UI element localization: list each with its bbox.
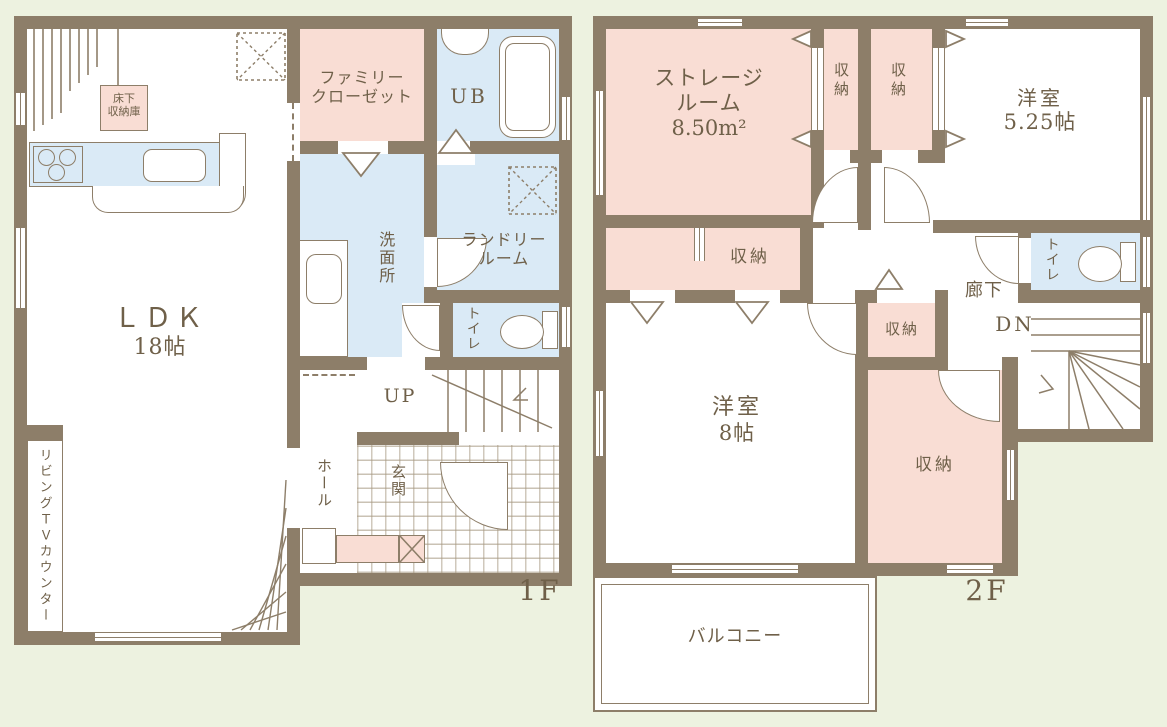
wall <box>855 370 868 563</box>
shoe-cabinet <box>336 535 399 563</box>
closet-walkin-label: 収納 <box>903 455 967 475</box>
opening-dashed-line <box>292 103 294 161</box>
wall <box>388 141 424 154</box>
toilet-tank <box>542 311 558 349</box>
closet-door-track <box>811 48 824 130</box>
stove-burner-icon <box>38 149 55 166</box>
wall <box>1140 16 1153 442</box>
wall <box>850 150 882 163</box>
window <box>15 93 26 125</box>
window <box>672 564 798 574</box>
window <box>1142 313 1151 363</box>
staircase-2f <box>1031 303 1140 429</box>
wall <box>780 290 807 303</box>
laundry-label: ランドリールーム <box>449 230 559 268</box>
wall <box>811 29 824 48</box>
window <box>561 97 571 140</box>
window <box>947 564 993 574</box>
folding-door-icon <box>438 128 474 154</box>
window <box>95 632 221 642</box>
vanity-basin <box>306 254 342 304</box>
opening-ldk-hall <box>287 448 300 528</box>
washroom-label: 洗面所 <box>376 231 395 285</box>
toilet-bowl <box>1078 246 1122 282</box>
window <box>1142 97 1151 220</box>
corner-hatch-lines <box>228 478 286 630</box>
wall-tv-counter-stub <box>27 425 63 440</box>
wall <box>593 215 811 228</box>
floor-plan-canvas: 床下収納庫 リビングＴＶカウンター <box>0 0 1167 727</box>
wall <box>593 290 630 303</box>
wall <box>424 29 437 154</box>
kitchen-sink <box>143 149 206 182</box>
wall <box>855 357 937 370</box>
folding-door-icon <box>792 30 812 48</box>
wall <box>470 141 559 154</box>
wall <box>1018 290 1140 303</box>
folding-door-icon <box>945 30 965 48</box>
window <box>698 18 742 27</box>
bathtub-inner <box>505 43 550 131</box>
ldk-label: ＬＤＫ 18帖 <box>90 303 230 362</box>
wall <box>918 150 945 163</box>
corridor-label: 廊下 <box>952 280 1016 302</box>
wall <box>437 290 559 303</box>
wall <box>593 16 1153 29</box>
window <box>1142 237 1151 287</box>
stairs-dn-label: DN <box>988 312 1042 336</box>
ceiling-hatch-box <box>508 166 557 215</box>
folding-door-icon <box>875 268 903 290</box>
stairs-up-label: UP <box>376 385 424 408</box>
balcony-label: バルコニー <box>670 626 800 648</box>
toilet-bowl <box>500 315 544 349</box>
stove-burner-icon <box>48 164 65 181</box>
wall <box>933 220 1140 233</box>
wall <box>811 150 819 163</box>
toilet-1f-label: トイレ <box>464 306 481 351</box>
shoe-cabinet-white <box>302 528 336 564</box>
wall <box>424 287 437 303</box>
room525-label: 洋室 5.25帖 <box>975 86 1105 135</box>
wall <box>1013 429 1153 442</box>
closet-a-label: 収納 <box>832 62 850 100</box>
window <box>15 228 26 308</box>
window <box>595 391 604 456</box>
folding-door-icon <box>945 130 965 148</box>
window <box>595 91 604 195</box>
ceiling-hatch-box <box>236 32 286 81</box>
closet-b-label: 収納 <box>889 62 907 100</box>
closet-door-track <box>932 48 945 130</box>
window <box>1006 450 1015 500</box>
wall <box>300 357 367 370</box>
floor1-caption: 1F <box>505 574 575 608</box>
hall-label: ホール <box>315 458 333 509</box>
cabinet-x-icon <box>399 535 425 563</box>
underfloor-storage-label: 床下収納庫 <box>100 92 148 118</box>
toilet-tank <box>1120 242 1136 282</box>
closet-hall-label: 収納 <box>708 247 792 267</box>
hanger-pole-icon <box>694 228 705 261</box>
unit-bath-label: UB <box>441 84 497 108</box>
storage-room-label: ストレージ ルーム 8.50m² <box>628 66 790 142</box>
window <box>561 307 571 347</box>
entrance-label: 玄関 <box>389 464 407 498</box>
family-closet-label: ファミリークローゼット <box>300 68 424 106</box>
wall <box>424 154 437 237</box>
folding-door-icon <box>630 301 664 325</box>
wall <box>425 357 559 370</box>
wall <box>932 29 945 48</box>
wall <box>858 29 871 230</box>
closet-small-label: 収納 <box>871 320 933 338</box>
hall-dashed-line <box>303 374 355 376</box>
wall <box>357 432 459 445</box>
wall <box>300 141 338 154</box>
toilet-2f-label: トイレ <box>1043 237 1060 282</box>
stove-burner-icon <box>59 149 76 166</box>
room8-label: 洋室 8帖 <box>672 395 802 447</box>
folding-door-icon <box>342 152 380 178</box>
wall <box>440 303 453 357</box>
window <box>966 18 1008 27</box>
wall <box>675 290 735 303</box>
tv-counter-label: リビングＴＶカウンター <box>36 448 52 624</box>
wall <box>1018 233 1031 238</box>
staircase-1f <box>430 370 559 432</box>
folding-door-icon <box>735 301 769 325</box>
floor2-caption: 2F <box>952 574 1022 608</box>
folding-door-icon <box>792 130 812 148</box>
dining-counter <box>92 186 244 213</box>
